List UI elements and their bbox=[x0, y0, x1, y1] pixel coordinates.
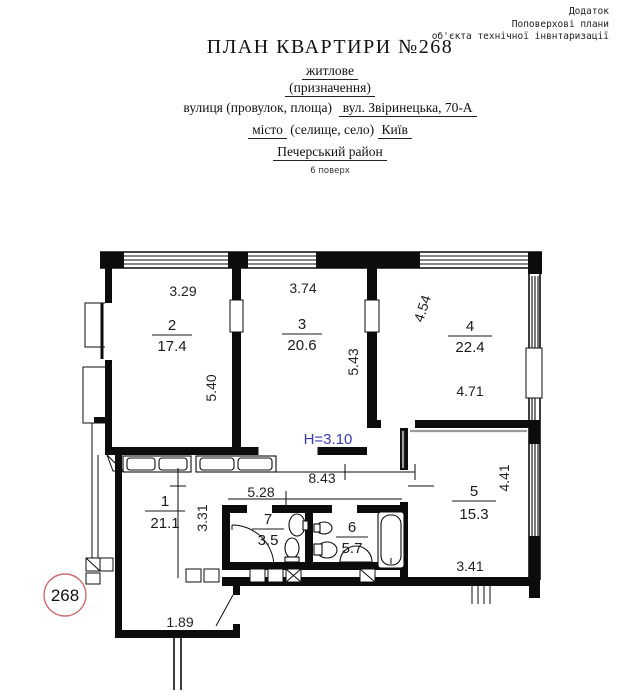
svg-text:21.1: 21.1 bbox=[150, 515, 179, 532]
window-room4-top bbox=[420, 256, 528, 264]
district-line: Печерський район bbox=[0, 144, 619, 160]
district-value: Печерський район bbox=[273, 144, 386, 161]
city-line: місто (селище, село) Київ bbox=[0, 122, 619, 138]
window-room2 bbox=[124, 256, 228, 264]
room-label-4: 4 22.4 bbox=[448, 318, 492, 356]
dim-hall-width: 8.43 bbox=[308, 470, 335, 486]
entrance-door-leaf bbox=[216, 595, 233, 626]
window-room4-right bbox=[532, 276, 538, 348]
toilet-icon bbox=[285, 538, 299, 558]
page-title: ПЛАН КВАРТИРИ №268 bbox=[0, 36, 619, 59]
city-label: (селище, село) bbox=[290, 122, 374, 137]
svg-text:1: 1 bbox=[161, 493, 169, 510]
window-room5-right bbox=[532, 444, 538, 536]
door-room2-room3 bbox=[230, 300, 243, 332]
corner-note-line-2: Поповерхові плани bbox=[432, 19, 609, 32]
city-word: місто bbox=[248, 122, 287, 139]
corner-note-line-1: Додаток bbox=[432, 6, 609, 19]
street-value: вул. Звіринецька, 70-А bbox=[339, 100, 477, 117]
apartment-number-badge: 268 bbox=[44, 574, 86, 616]
dim-room3-width: 3.74 bbox=[289, 280, 316, 296]
ceiling-height-label: H=3.10 bbox=[304, 431, 353, 448]
floor-plan-page: Додаток Поповерхові плани об'єкта техніч… bbox=[0, 0, 619, 698]
wardrobe-units bbox=[107, 455, 276, 472]
svg-text:20.6: 20.6 bbox=[287, 337, 316, 354]
svg-text:7: 7 bbox=[264, 511, 272, 528]
svg-text:15.3: 15.3 bbox=[459, 506, 488, 523]
purpose-label: (призначення) bbox=[285, 80, 375, 97]
room-label-1: 1 21.1 bbox=[145, 493, 185, 532]
left-wall bbox=[102, 268, 112, 455]
dim-corridor-width: 5.28 bbox=[247, 484, 274, 500]
purpose-value: житлове bbox=[302, 63, 358, 80]
svg-text:3.5: 3.5 bbox=[258, 532, 279, 549]
dim-room2-depth: 5.40 bbox=[203, 374, 219, 401]
dim-hall-depth: 3.31 bbox=[194, 504, 210, 531]
svg-text:6: 6 bbox=[348, 519, 356, 536]
floor-label: 6 поверх bbox=[0, 166, 619, 176]
svg-text:4: 4 bbox=[466, 318, 474, 335]
city-value: Київ bbox=[378, 122, 412, 139]
svg-text:5.7: 5.7 bbox=[342, 540, 363, 557]
window-sill-block bbox=[526, 348, 542, 398]
floor-plan-drawing: 3.29 3.74 4.54 5.40 5.43 4.71 8.43 3.31 … bbox=[0, 228, 619, 698]
window-room3 bbox=[248, 256, 316, 264]
door-room3-room4 bbox=[365, 300, 379, 332]
room-label-3: 3 20.6 bbox=[282, 316, 322, 354]
svg-text:17.4: 17.4 bbox=[157, 338, 186, 355]
room-label-2: 2 17.4 bbox=[152, 317, 192, 355]
street-line: вулиця (провулок, площа) вул. Звіринецьк… bbox=[0, 100, 619, 116]
svg-text:5: 5 bbox=[470, 483, 478, 500]
purpose-label-line: (призначення) bbox=[0, 80, 619, 96]
svg-text:2: 2 bbox=[168, 317, 176, 334]
dim-room3-depth: 5.43 bbox=[345, 348, 361, 375]
svg-text:3: 3 bbox=[298, 316, 306, 333]
room-label-5: 5 15.3 bbox=[452, 483, 496, 523]
room-label-7: 7 3.5 bbox=[252, 511, 284, 549]
dim-entry-width: 1.89 bbox=[166, 614, 193, 630]
purpose-value-line: житлове bbox=[0, 63, 619, 79]
apartment-number: 268 bbox=[51, 586, 79, 605]
dim-room5-depth: 4.41 bbox=[496, 464, 512, 491]
dim-room2-width: 3.29 bbox=[169, 283, 196, 299]
dim-room4-width: 4.54 bbox=[410, 293, 434, 324]
street-label: вулиця (провулок, площа) bbox=[183, 100, 332, 115]
dim-room4-depth: 4.71 bbox=[456, 383, 483, 399]
dim-room5-width: 3.41 bbox=[456, 558, 483, 574]
svg-text:22.4: 22.4 bbox=[455, 339, 484, 356]
top-wall bbox=[100, 252, 542, 274]
